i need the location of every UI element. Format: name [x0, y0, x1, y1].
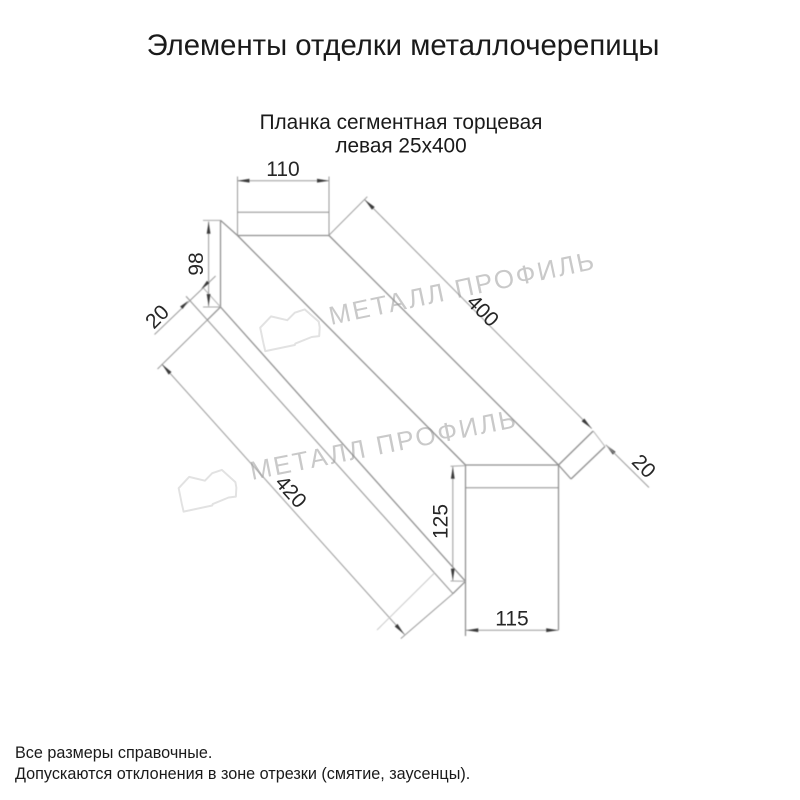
svg-text:Элементы отделки металлочерепи: Элементы отделки металлочерепицы [147, 29, 660, 62]
svg-text:125: 125 [430, 504, 453, 539]
svg-text:115: 115 [495, 608, 528, 631]
svg-text:левая 25х400: левая 25х400 [335, 135, 466, 158]
svg-text:Все размеры справочные.: Все размеры справочные. [15, 744, 212, 762]
svg-text:110: 110 [266, 158, 299, 181]
svg-text:Допускаются отклонения в зоне: Допускаются отклонения в зоне отрезки (с… [15, 765, 470, 783]
svg-text:Планка сегментная торцевая: Планка сегментная торцевая [260, 111, 543, 134]
svg-text:98: 98 [185, 252, 208, 275]
